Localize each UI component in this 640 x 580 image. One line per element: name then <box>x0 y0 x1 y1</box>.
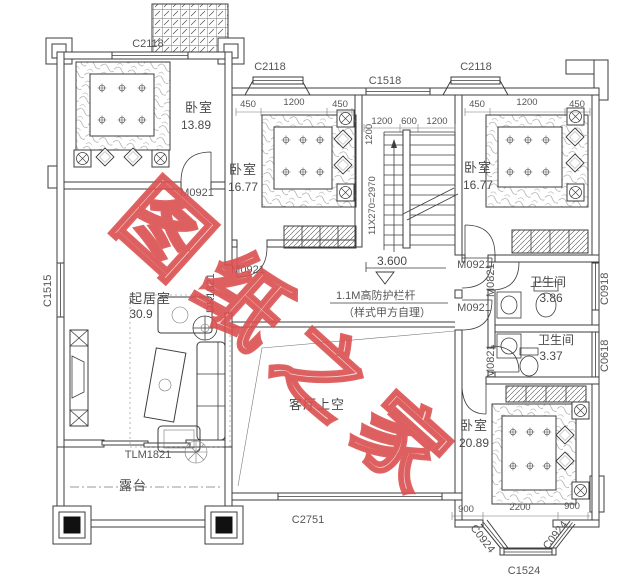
void-sketch-lines <box>238 331 455 486</box>
label-c2118-right: C2118 <box>460 61 492 73</box>
dim-stair-1200b: 1200 <box>426 116 447 127</box>
railing-note-line2: （样式甲方自理） <box>343 305 431 319</box>
label-m0921-hall-bottom: M0921 <box>457 302 491 314</box>
dim-stair-run: 11X270=2970 <box>367 176 378 235</box>
area-bedroom-br: 20.89 <box>459 436 489 450</box>
floor-plan-drawing: 3.600 1.1M高防护栏杆 （样式甲方自理） <box>0 0 640 580</box>
label-c1515: C1515 <box>42 275 54 307</box>
label-c2118-left: C2118 <box>132 38 164 50</box>
label-m0821-top: M0821 <box>485 263 497 297</box>
window-c1518 <box>366 88 430 95</box>
bedroom-mid-furniture <box>262 110 356 248</box>
bedroom-br-furniture <box>492 386 589 504</box>
label-m0921-tl: M0921 <box>180 187 214 199</box>
label-void: 客厅上空 <box>289 397 345 412</box>
dim-mid-450b: 450 <box>332 99 348 110</box>
window-c1515 <box>57 263 64 317</box>
blueprint-canvas: 3.600 1.1M高防护栏杆 （样式甲方自理） <box>0 0 640 580</box>
label-c2118-mid: C2118 <box>254 61 286 73</box>
area-living: 30.9 <box>129 307 153 321</box>
label-bedroom-mid: 卧室 <box>229 162 257 177</box>
dim-tr-450b: 450 <box>569 99 585 110</box>
area-bath-bottom: 3.37 <box>539 349 563 363</box>
dim-tr-1200: 1200 <box>516 97 537 108</box>
window-c1524 <box>504 549 552 555</box>
dim-bay-900a: 900 <box>458 504 474 515</box>
label-living: 起居室 <box>129 291 171 306</box>
label-c2751: C2751 <box>292 514 324 526</box>
label-m0921-mid: M0921 <box>231 264 265 276</box>
door-m0921-tl <box>181 152 211 182</box>
door-m0921-tr-bedroom <box>465 225 495 255</box>
label-bedroom-tl: 卧室 <box>185 100 213 115</box>
label-terrace: 露台 <box>119 478 147 493</box>
label-c0618: C0618 <box>599 340 611 372</box>
area-bedroom-tr: 16.77 <box>463 178 493 192</box>
dim-stair-600: 600 <box>401 116 417 127</box>
label-m0821-bottom: M0821 <box>485 344 497 378</box>
label-bath-top: 卫生间 <box>530 275 566 289</box>
sliding-door-tlm1821 <box>102 441 190 447</box>
label-bedroom-tr: 卧室 <box>464 160 492 175</box>
area-bedroom-mid: 16.77 <box>228 180 258 194</box>
label-dk1821: DK1821 <box>205 273 217 313</box>
label-bedroom-br: 卧室 <box>460 418 488 433</box>
railing-note-line1: 1.1M高防护栏杆 <box>336 288 415 302</box>
dim-mid-450a: 450 <box>240 99 256 110</box>
dim-mid-1200: 1200 <box>283 97 304 108</box>
label-c1518: C1518 <box>369 75 401 87</box>
window-c0618 <box>592 332 599 377</box>
dim-bay-2200: 2200 <box>509 502 530 513</box>
dim-bay-900b: 900 <box>564 501 580 512</box>
window-c2118-left <box>112 52 188 59</box>
terrace-structure <box>53 447 243 544</box>
level-value: 3.600 <box>377 254 407 268</box>
window-c0918 <box>592 263 599 310</box>
label-c0918: C0918 <box>599 273 611 305</box>
bathroom-bottom-fixtures <box>497 334 538 376</box>
stairs <box>384 130 458 252</box>
window-c2751 <box>278 493 442 500</box>
label-tlm1821: TLM1821 <box>125 449 171 461</box>
area-bath-top: 3.86 <box>539 291 563 305</box>
bedroom-tr-furniture <box>486 108 588 253</box>
level-annotation: 3.600 1.1M高防护栏杆 （样式甲方自理） <box>330 254 448 319</box>
bedroom-tl-furniture <box>74 62 170 167</box>
dim-stair-depth: 1200 <box>364 124 375 145</box>
label-c1524: C1524 <box>508 565 540 577</box>
door-bedroom-br <box>462 384 486 414</box>
label-bath-bottom: 卫生间 <box>538 333 574 347</box>
area-bedroom-tl: 13.89 <box>181 118 211 132</box>
dim-tr-450a: 450 <box>469 99 485 110</box>
